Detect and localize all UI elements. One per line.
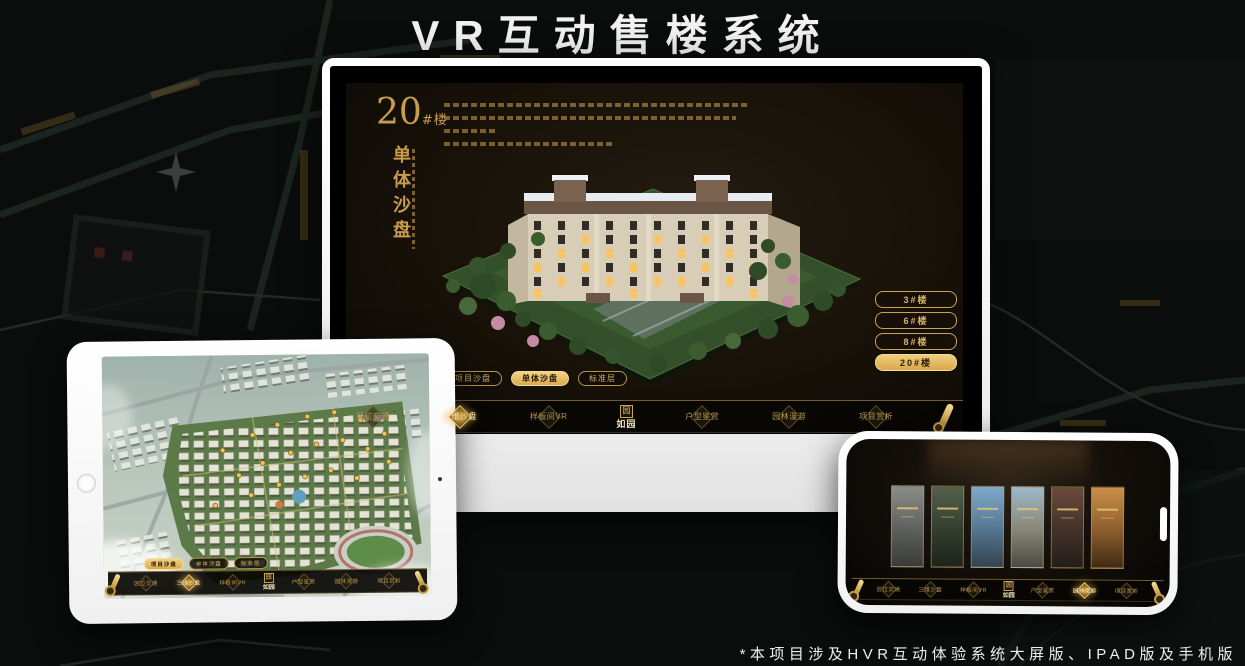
nav-item-model-room-vr[interactable]: 样板间VR xyxy=(958,583,989,597)
nav-item-model-room-vr[interactable]: 样板间VR xyxy=(217,575,248,589)
interior-scene-light xyxy=(928,439,1088,486)
nav-item-3d-sandbox[interactable]: 三维沙盘 xyxy=(175,576,203,590)
tablet-screen: 项目沙盘 单体沙盘 标准层 区位交通 三维沙盘 样板间VR 园 如园 户型鉴赏 … xyxy=(102,353,432,598)
section-subtitle-decoration xyxy=(412,149,415,249)
brand-logo[interactable]: 园 如园 xyxy=(263,573,275,591)
gallery-panel-4[interactable] xyxy=(1011,486,1045,568)
gallery-panel-2[interactable] xyxy=(931,485,965,567)
brand-seal-icon: 园 xyxy=(264,573,274,583)
brand-seal-icon: 园 xyxy=(1004,581,1014,591)
scroll-menu-icon[interactable] xyxy=(937,402,955,430)
gallery-panel-6[interactable] xyxy=(1091,487,1125,569)
phone-device: 区位交通 三维沙盘 样板间VR 园 如园 户型鉴赏 园林漫游 项目赏析 xyxy=(837,431,1178,615)
brand-seal-icon: 园 xyxy=(620,405,633,418)
project-description-text xyxy=(444,103,749,155)
tab-single-sandbox[interactable]: 单体沙盘 xyxy=(511,371,569,386)
nav-item-project-review[interactable]: 项目赏析 xyxy=(855,406,897,427)
block-number: 20#楼 xyxy=(376,95,448,131)
floor-button-8[interactable]: 8#楼 xyxy=(875,333,957,350)
tablet-home-button[interactable] xyxy=(77,474,96,493)
brand-logo[interactable]: 园 如园 xyxy=(616,405,636,429)
tab-single-sandbox[interactable]: 单体沙盘 xyxy=(189,557,229,569)
tab-standard-floor[interactable]: 标准层 xyxy=(578,371,627,386)
floor-button-6[interactable]: 6#楼 xyxy=(875,312,957,329)
scroll-menu-icon-right[interactable] xyxy=(414,570,427,590)
tablet-nav-bar: 区位交通 三维沙盘 样板间VR 园 如园 户型鉴赏 园林漫游 项目赏析 xyxy=(108,568,427,595)
tab-project-sandbox[interactable]: 项目沙盘 xyxy=(144,558,184,570)
floor-button-3[interactable]: 3#楼 xyxy=(875,291,957,308)
nav-item-project-review[interactable]: 项目赏析 xyxy=(1113,584,1141,598)
nav-item-floorplans[interactable]: 户型鉴赏 xyxy=(290,574,318,588)
nav-item-garden-tour[interactable]: 园林漫游 xyxy=(768,406,810,427)
nav-item-3d-sandbox[interactable]: 三维沙盘 xyxy=(916,582,944,596)
phone-screen: 区位交通 三维沙盘 样板间VR 园 如园 户型鉴赏 园林漫游 项目赏析 xyxy=(845,439,1170,607)
nav-item-location[interactable]: 区位交通 xyxy=(874,582,902,596)
nav-item-floorplans[interactable]: 户型鉴赏 xyxy=(681,406,723,427)
monitor-view-tabs: 项目沙盘 单体沙盘 标准层 xyxy=(444,371,627,386)
nav-item-garden-tour[interactable]: 园林漫游 xyxy=(1071,583,1099,597)
floor-selector: 3#楼 6#楼 8#楼 20#楼 xyxy=(875,291,957,371)
floor-button-20[interactable]: 20#楼 xyxy=(875,354,957,371)
tab-standard-floor[interactable]: 标准层 xyxy=(234,557,268,569)
gallery-panel-3[interactable] xyxy=(971,486,1005,568)
nav-item-floorplans[interactable]: 户型鉴赏 xyxy=(1029,583,1057,597)
nav-item-garden-tour[interactable]: 园林漫游 xyxy=(332,574,360,588)
phone-home-indicator[interactable] xyxy=(1160,507,1167,541)
brand-logo[interactable]: 园 如园 xyxy=(1003,581,1015,599)
scroll-menu-icon-right[interactable] xyxy=(1151,581,1164,601)
phone-nav-bar: 区位交通 三维沙盘 样板间VR 园 如园 户型鉴赏 园林漫游 项目赏析 xyxy=(851,578,1163,602)
poster-stage: VR互动售楼系统 20#楼 单体沙盘 xyxy=(0,0,1245,666)
page-title: VR互动售楼系统 xyxy=(0,2,1245,63)
footnote-text: *本项目涉及HVR互动体验系统大屏版、IPAD版及手机版 xyxy=(740,643,1237,664)
gallery-panels xyxy=(891,485,1125,569)
scroll-menu-icon-left[interactable] xyxy=(108,573,121,593)
gallery-panel-5[interactable] xyxy=(1051,486,1085,568)
tablet-device: 项目沙盘 单体沙盘 标准层 区位交通 三维沙盘 样板间VR 园 如园 户型鉴赏 … xyxy=(67,338,458,624)
gallery-panel-1[interactable] xyxy=(891,485,925,567)
nav-item-project-review[interactable]: 项目赏析 xyxy=(375,574,403,588)
nav-item-location[interactable]: 区位交通 xyxy=(132,576,160,590)
scroll-menu-icon-left[interactable] xyxy=(852,579,865,599)
section-title-vertical: 单体沙盘 xyxy=(388,145,414,245)
tablet-view-tabs: 项目沙盘 单体沙盘 标准层 xyxy=(144,557,268,570)
building-3d-render[interactable] xyxy=(428,151,868,391)
nav-item-model-room-vr[interactable]: 样板间VR xyxy=(526,406,572,427)
tablet-camera-dot xyxy=(438,477,442,481)
